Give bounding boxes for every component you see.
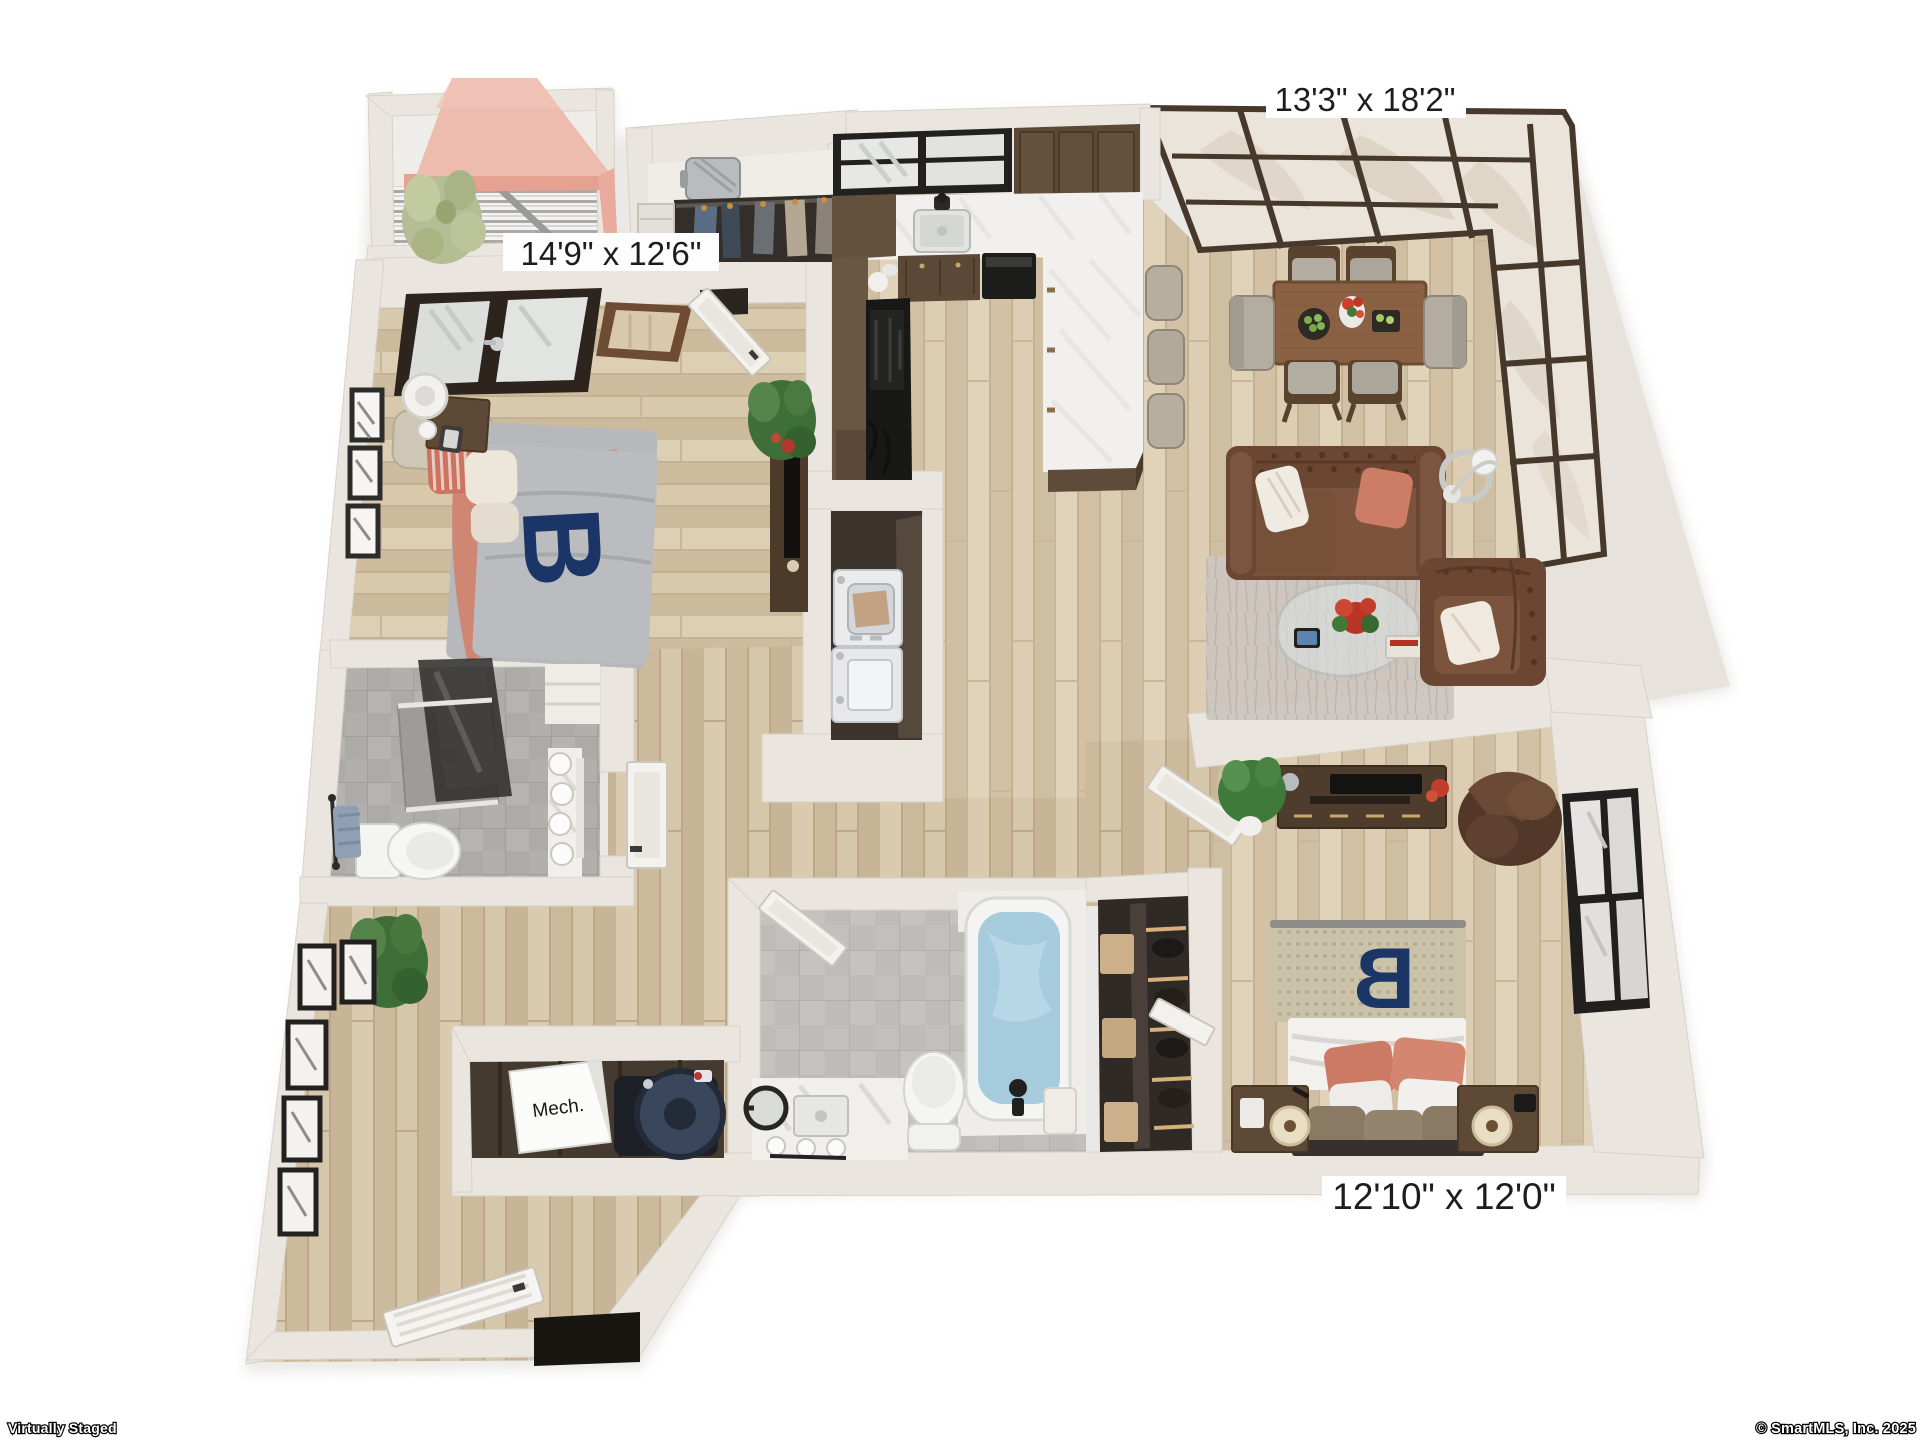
- svg-text:14'9" x 12'6": 14'9" x 12'6": [521, 235, 702, 272]
- svg-text:13'3" x 18'2": 13'3" x 18'2": [1275, 81, 1456, 118]
- svg-text:12'10" x 12'0": 12'10" x 12'0": [1332, 1176, 1556, 1217]
- svg-text:© SmartMLS, Inc. 2025: © SmartMLS, Inc. 2025: [1756, 1421, 1916, 1437]
- svg-text:B: B: [499, 504, 626, 590]
- svg-text:Virtually Staged: Virtually Staged: [8, 1420, 117, 1436]
- svg-text:B: B: [1353, 931, 1415, 1027]
